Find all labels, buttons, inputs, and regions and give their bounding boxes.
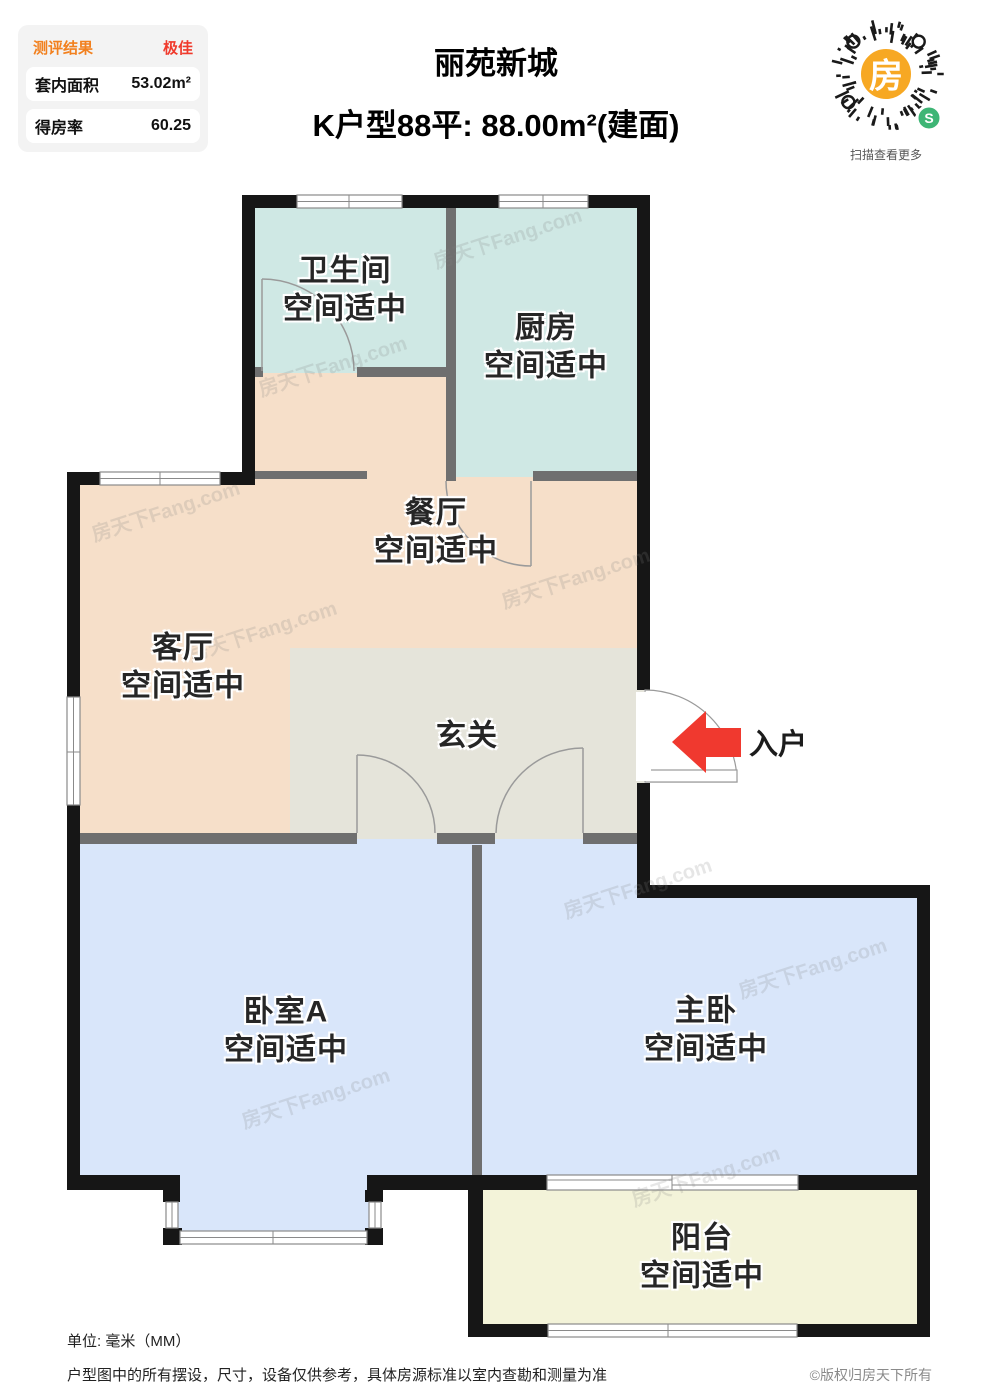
qr-code: 房 S 扫描查看更多 — [824, 12, 948, 164]
floorplan-page: 房天下Fang.com 房天下Fang.com 房天下Fang.com 房天下F… — [0, 0, 992, 1400]
inner-area-value: 53.02m² — [131, 75, 191, 93]
window-bathroom-top — [297, 195, 402, 208]
room-note: 空间适中 — [644, 1030, 768, 1068]
room-note: 空间适中 — [374, 532, 498, 570]
rating-result-value: 极佳 — [163, 37, 193, 58]
inner-area-row: 套内面积 53.02m² — [26, 67, 200, 101]
rating-result-row: 测评结果 极佳 — [26, 34, 200, 67]
usable-ratio-label: 得房率 — [35, 114, 83, 138]
room-name: 主卧 — [644, 993, 768, 1031]
room-label-entry: 玄关 — [436, 717, 498, 755]
usable-ratio-row: 得房率 60.25 — [26, 109, 200, 143]
room-note: 空间适中 — [484, 347, 608, 385]
room-note: 空间适中 — [121, 667, 245, 705]
room-note: 空间适中 — [224, 1031, 348, 1069]
disclaimer: 户型图中的所有摆设，尺寸，设备仅供参考，具体房源标准以室内查勘和测量为准 — [67, 1364, 607, 1385]
rating-panel: 测评结果 极佳 套内面积 53.02m² 得房率 60.25 — [18, 25, 208, 152]
room-name: 卧室A — [224, 994, 348, 1032]
room-label-balcony: 阳台 空间适中 — [640, 1220, 764, 1295]
room-name: 厨房 — [484, 310, 608, 348]
qr-caption: 扫描查看更多 — [824, 146, 948, 163]
usable-ratio-value: 60.25 — [151, 117, 191, 135]
window-living-left — [67, 697, 80, 805]
entrance-label: 入户 — [749, 721, 807, 763]
room-name: 玄关 — [436, 717, 498, 755]
room-name: 阳台 — [640, 1220, 764, 1258]
unit-note: 单位: 毫米（MM） — [67, 1330, 190, 1351]
room-label-dining: 餐厅 空间适中 — [374, 495, 498, 570]
room-note: 空间适中 — [283, 290, 407, 328]
room-name: 客厅 — [121, 630, 245, 668]
room-label-bedroomA: 卧室A 空间适中 — [224, 994, 348, 1069]
qr-center-logo: 房 — [869, 49, 903, 98]
room-label-master: 主卧 空间适中 — [644, 993, 768, 1068]
room-fill-bay — [177, 1183, 373, 1235]
rating-result-label: 测评结果 — [33, 37, 93, 58]
room-name: 卫生间 — [283, 253, 407, 291]
room-note: 空间适中 — [640, 1257, 764, 1295]
room-name: 餐厅 — [374, 495, 498, 533]
room-label-living: 客厅 空间适中 — [121, 630, 245, 705]
copyright: ©版权归房天下所有 — [810, 1365, 932, 1385]
inner-area-label: 套内面积 — [35, 72, 99, 96]
room-label-kitchen: 厨房 空间适中 — [484, 310, 608, 385]
window-balcony-bottom — [548, 1324, 797, 1337]
qr-badge-icon: S — [924, 110, 933, 126]
entrance-opening — [636, 692, 651, 781]
room-label-bathroom: 卫生间 空间适中 — [283, 253, 407, 328]
